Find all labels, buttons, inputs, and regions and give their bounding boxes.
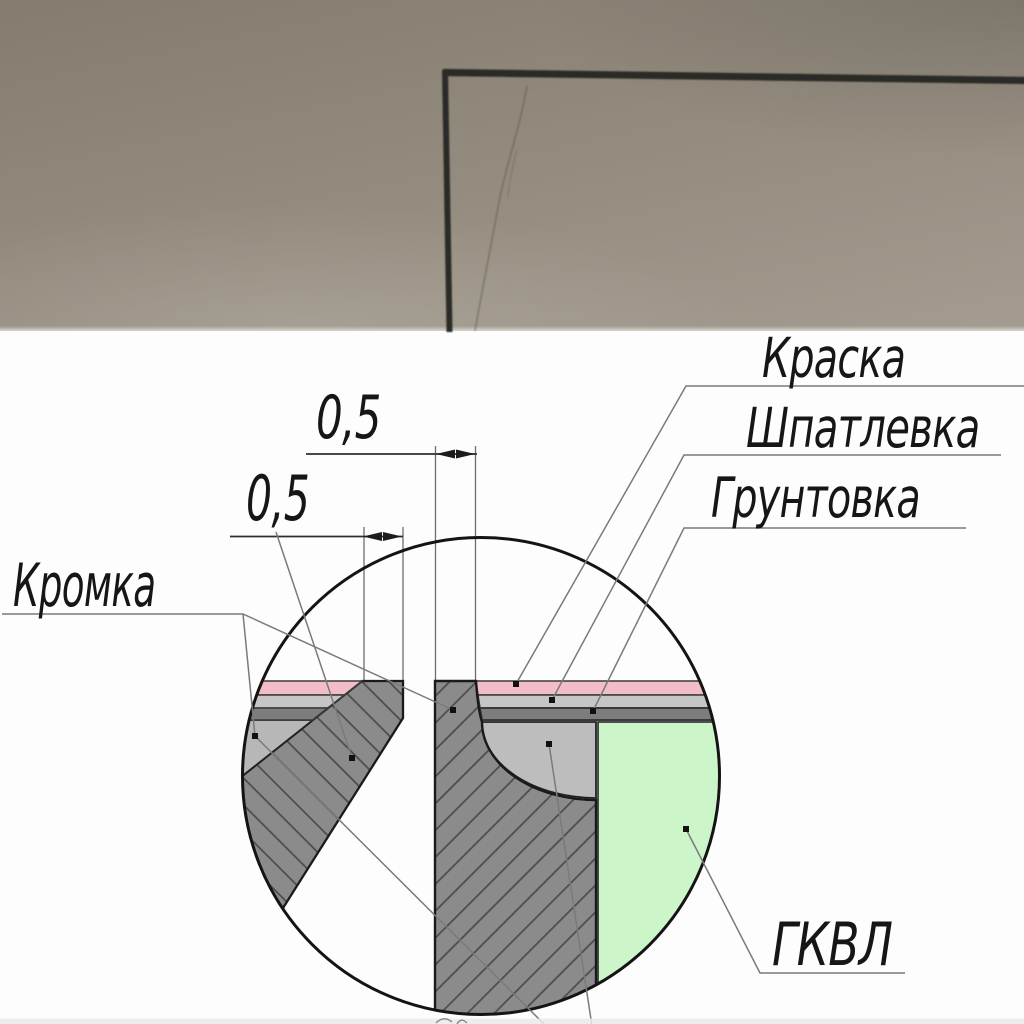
dimension-value-left: 0,5 bbox=[246, 468, 309, 530]
edge-leader-a bbox=[2, 614, 255, 736]
dimension-arrows bbox=[363, 450, 475, 542]
screenshot-root: Краска Шпатлевка Грунтовка Кромка ГКВЛ 0… bbox=[0, 0, 1024, 1024]
putty-layer-right bbox=[478, 695, 730, 708]
label-putty: Шпатлевка bbox=[746, 401, 979, 456]
primer-layer-left bbox=[230, 708, 328, 720]
primer-layer-right bbox=[480, 708, 730, 720]
label-gkvl-board: ГКВЛ bbox=[772, 915, 892, 975]
groove-vertical-line bbox=[445, 70, 450, 332]
label-edge: Кромка bbox=[13, 556, 155, 616]
plaster-crack bbox=[475, 86, 527, 331]
label-paint: Краска bbox=[762, 331, 905, 386]
putty-layer-left bbox=[230, 695, 344, 708]
dimension-value-top: 0,5 bbox=[316, 388, 381, 448]
label-primer: Грунтовка bbox=[711, 471, 920, 526]
extension-lines bbox=[364, 446, 476, 681]
gkvl-board-section bbox=[598, 722, 730, 1020]
groove-horizontal-line bbox=[443, 73, 1024, 81]
bottom-cutoff-strip bbox=[0, 1019, 1024, 1024]
